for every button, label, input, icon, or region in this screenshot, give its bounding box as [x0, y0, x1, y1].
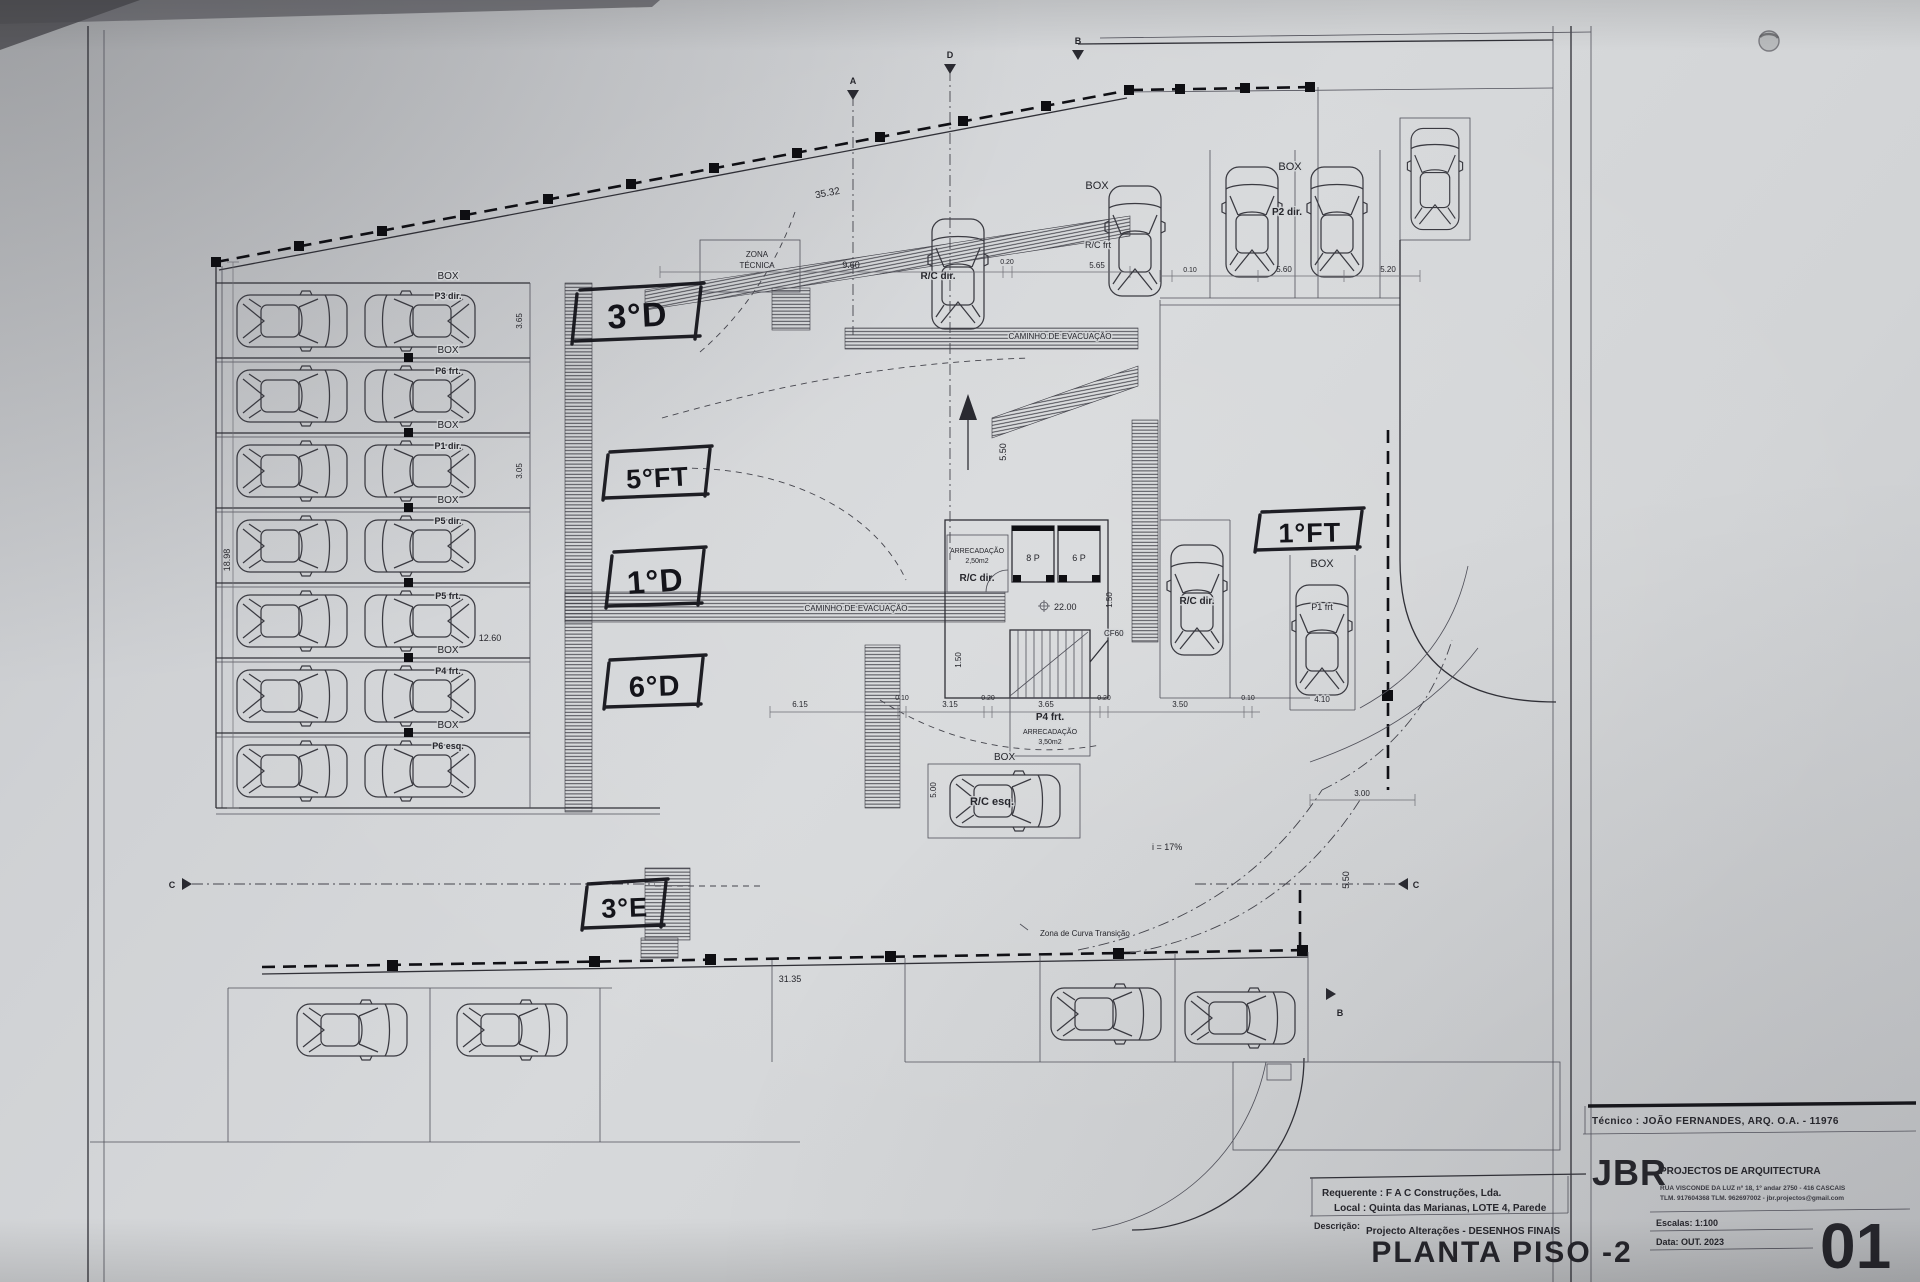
bottom-center-bay: BOX R/C esq. i = 17% Zona de Curva Trans…: [928, 752, 1182, 938]
storage2-label: ARRECADAÇÃO: [1023, 727, 1078, 736]
box-label: BOX: [437, 720, 458, 731]
evacuation-label-top: CAMINHO DE EVACUAÇÃO: [1009, 332, 1112, 341]
firm-logo: JBR: [1592, 1152, 1667, 1193]
space-label-rc-esq: R/C esq.: [970, 796, 1014, 808]
dim-bottom-length: 31.35: [779, 974, 802, 984]
row-dim: 12.60: [479, 633, 502, 643]
date-field: Data: OUT. 2023: [1656, 1237, 1724, 1247]
section-a: A: [850, 76, 857, 86]
top-zone: ZONA TÉCNICA R/C dir. BOX R/C frt CAMINH…: [700, 87, 1470, 341]
row-dim: 3.05: [515, 463, 524, 479]
dim-500: 5.00: [929, 782, 938, 798]
wall-hatch-right: [1132, 420, 1158, 642]
dim-020: 0.20: [981, 695, 995, 702]
section-c-right: C: [1413, 880, 1420, 890]
paper-corner-shadow: [0, 0, 140, 50]
requerente-field: Requerente : F A C Construções, Lda.: [1322, 1188, 1502, 1199]
space-code: P6 esq.: [432, 741, 464, 751]
section-b-bottom: B: [1337, 1008, 1344, 1018]
scale-field: Escalas: 1:100: [1656, 1218, 1718, 1228]
local-field: Local : Quinta das Marianas, LOTE 4, Par…: [1334, 1203, 1547, 1214]
box-label: BOX: [1085, 180, 1109, 192]
storage2-owner: P4 frt.: [1036, 712, 1065, 723]
plan-drawing: BOX P3 dir. BOX P6 frt. BOX P1 dir. BOX …: [0, 0, 1920, 1282]
sheet-frame: [88, 26, 1591, 1282]
door-cf60-label: CF60: [1104, 629, 1124, 638]
handwritten-6d: 6°D: [604, 655, 706, 709]
bottom-right-room: [1233, 1062, 1560, 1150]
boundary-posts: [211, 82, 1393, 971]
wall-hatch-vertical: [565, 283, 592, 812]
level-marker: 22.00: [1038, 600, 1077, 612]
storage2-area: 3,50m2: [1038, 739, 1061, 746]
elevator-6p-label: 6 P: [1072, 553, 1086, 563]
svg-text:5°FT: 5°FT: [625, 461, 689, 494]
ramp-slope: i = 17%: [1152, 842, 1182, 852]
dim-020b: 0.20: [1097, 695, 1111, 702]
door-cf60: [1090, 640, 1108, 662]
svg-text:6°D: 6°D: [628, 670, 681, 704]
ramp-hatch-mid: [992, 366, 1138, 438]
space-code: P4 frt.: [435, 666, 461, 676]
svg-text:3°D: 3°D: [606, 295, 668, 336]
dim-550b: 5.50: [1341, 871, 1351, 889]
svg-text:1°FT: 1°FT: [1278, 517, 1341, 548]
row-dim: 3.65: [515, 313, 524, 329]
storage-owner: R/C dir.: [959, 573, 994, 584]
firm-address-1: RUA VISCONDE DA LUZ nº 18, 1º andar 2750…: [1660, 1185, 1846, 1192]
section-d: D: [947, 50, 954, 60]
mini-stair: [641, 938, 678, 958]
handwritten-1ft: 1°FT: [1255, 508, 1364, 552]
handwritten-5ft: 5°FT: [603, 446, 712, 500]
tech-zone-stair: [772, 288, 810, 330]
dim-520: 5.20: [1380, 265, 1396, 274]
dim-365: 3.65: [1038, 700, 1054, 709]
central-core: ARRECADAÇÃO 2,50m2 R/C dir. 8 P 6 P 22.0…: [805, 520, 1125, 756]
space-code: P3 dir.: [434, 291, 461, 301]
corner-bay: [1400, 118, 1470, 240]
tech-zone-label-1: ZONA: [746, 250, 769, 259]
dim-410: 4.10: [1314, 695, 1330, 704]
storage-area: 2,50m2: [965, 558, 988, 565]
space-label-rc-dir-2: R/C dir.: [1179, 596, 1214, 607]
road-curves: [1078, 240, 1556, 1230]
section-b-top: B: [1075, 36, 1082, 46]
descricao-label: Descrição:: [1314, 1221, 1360, 1231]
curve-zone-label: Zona de Curva Transição: [1040, 929, 1130, 938]
parking-rows-left: BOX P3 dir. BOX P6 frt. BOX P1 dir. BOX …: [216, 271, 530, 808]
dim-550a: 5.50: [998, 443, 1008, 461]
drawing-title: PLANTA PISO -2: [1371, 1236, 1632, 1269]
property-line-bottom: [262, 950, 1308, 967]
elevators: 8 P 6 P: [1012, 526, 1100, 582]
box-label: BOX: [437, 495, 458, 506]
box-label: BOX: [437, 645, 458, 656]
property-line-top: [216, 90, 1130, 262]
photographed-floor-plan-sheet: BOX P3 dir. BOX P6 frt. BOX P1 dir. BOX …: [0, 0, 1920, 1282]
dim-020-top: 0.20: [1000, 259, 1014, 266]
dim-010: 0.10: [895, 695, 909, 702]
svg-text:3°E: 3°E: [601, 892, 649, 924]
dim-350: 3.50: [1172, 700, 1188, 709]
dim-010-tr: 0.10: [1183, 267, 1197, 274]
space-label-p1-frt: P1 frt: [1311, 602, 1333, 612]
space-label-rc-frt: R/C frt: [1085, 240, 1111, 250]
section-c-left: C: [169, 880, 176, 890]
dim-565: 5.65: [1089, 261, 1105, 270]
space-code: P1 dir.: [434, 441, 461, 451]
title-block: Técnico : JOÃO FERNANDES, ARQ. O.A. - 11…: [1310, 1103, 1916, 1282]
dim-010b: 0.10: [1241, 695, 1255, 702]
dim-560: 5.60: [1276, 265, 1292, 274]
dim-960: 9.60: [842, 260, 860, 270]
dim-top-length: 35.32: [814, 186, 841, 202]
box-label: BOX: [437, 271, 458, 282]
paper-edge-artifacts: [0, 0, 1779, 51]
elevator-8p-label: 8 P: [1026, 553, 1040, 563]
dim-150a: 1.50: [954, 652, 963, 668]
bottom-parking: [90, 952, 1560, 1150]
dim-300: 3.00: [1354, 789, 1370, 798]
svg-text:1°D: 1°D: [626, 561, 685, 601]
box-label: BOX: [437, 345, 458, 356]
space-code: P5 frt.: [435, 591, 461, 601]
storage-label: ARRECADAÇÃO: [950, 546, 1005, 555]
staircase: [1010, 630, 1090, 698]
dim-315: 3.15: [942, 700, 958, 709]
space-label-p2-dir: P2 dir.: [1272, 207, 1302, 218]
ramp-hatch-top: [645, 216, 1130, 310]
dim-615: 6.15: [792, 700, 808, 709]
dim-150b: 1.50: [1105, 592, 1114, 608]
box-label: BOX: [1310, 558, 1334, 570]
stair-hatch-strip: [865, 645, 900, 808]
box-label: BOX: [437, 420, 458, 431]
sheet-number: 01: [1820, 1210, 1891, 1282]
dimensions: 35.32 9.60 0.20 5.65 0.10 5.60 5.20 18.9…: [222, 186, 1420, 984]
box-label: BOX: [1278, 161, 1302, 173]
firm-tagline: PROJECTOS DE ARQUITECTURA: [1660, 1166, 1821, 1177]
evacuation-label-mid: CAMINHO DE EVACUAÇÃO: [805, 604, 908, 613]
box-label: BOX: [994, 752, 1015, 763]
space-code: P5 dir.: [434, 516, 461, 526]
dim-left-height: 18.98: [222, 549, 232, 572]
tech-zone-label-2: TÉCNICA: [739, 261, 775, 270]
tecnico-field: Técnico : JOÃO FERNANDES, ARQ. O.A. - 11…: [1592, 1114, 1839, 1127]
ramp-direction-arrow: [959, 394, 977, 470]
space-code: P6 frt.: [435, 366, 461, 376]
section-markers: A D B C C B: [169, 36, 1420, 1018]
level-value: 22.00: [1054, 602, 1077, 612]
parking-space-labels: BOX P3 dir. BOX P6 frt. BOX P1 dir. BOX …: [432, 271, 524, 751]
firm-address-2: TLM. 917604368 TLM. 962697002 - jbr.proj…: [1660, 1195, 1844, 1202]
